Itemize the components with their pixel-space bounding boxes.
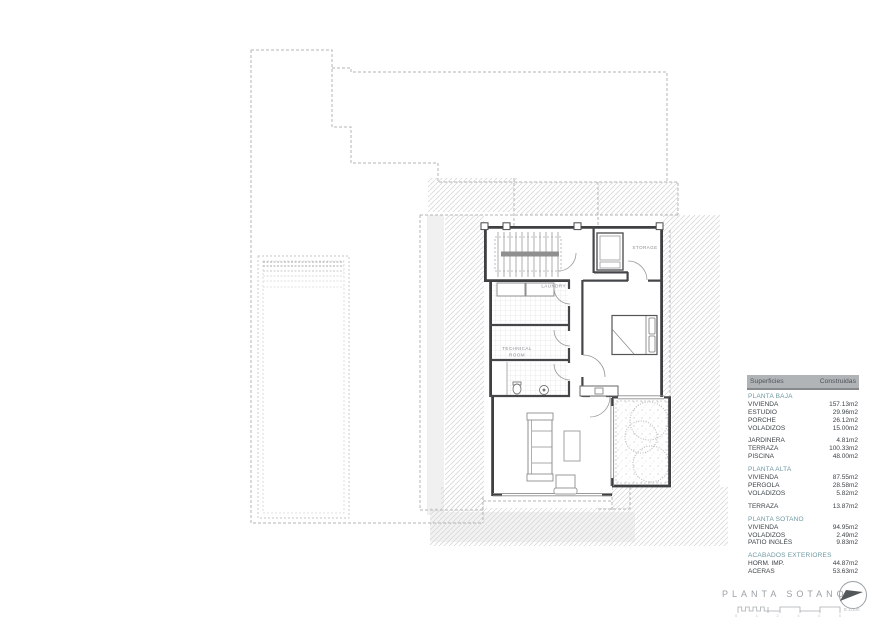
row-label: ACERAS	[748, 568, 775, 576]
table-row: PISCINA48.00m2	[747, 453, 859, 461]
section-title: PLANTA SOTANO	[747, 516, 859, 524]
section-title: PLANTA BAJA	[747, 393, 859, 401]
pool-steps	[263, 262, 344, 287]
row-value: 15.00m2	[833, 425, 858, 433]
row-label: HORM. IMP.	[748, 560, 784, 568]
technical-room-label-1: TECHNICAL	[502, 346, 532, 351]
section-title: PLANTA ALTA	[747, 466, 859, 474]
table-row: VIVIENDA157.13m2	[747, 401, 859, 409]
col-header-concept: Superficies	[750, 378, 784, 386]
scale-tick: 0	[735, 613, 737, 618]
toilet-icon	[513, 384, 521, 394]
pillow	[649, 336, 655, 352]
scale-tick: 2	[777, 613, 779, 618]
col-header-built: Construidas	[820, 378, 856, 386]
surfaces-section: ACABADOS EXTERIORESHORM. IMP.44.87m2ACER…	[747, 552, 859, 576]
row-label: PISCINA	[748, 453, 774, 461]
surfaces-section: JARDINERA4.81m2TERRAZA100.33m2PISCINA48.…	[747, 437, 859, 461]
row-label: TERRAZA	[748, 445, 778, 453]
storage-shelf	[597, 233, 623, 270]
stair-handrail	[501, 252, 559, 257]
table-row: PERGOLA28.58m2	[747, 482, 859, 490]
table-row: JARDINERA4.81m2	[747, 437, 859, 445]
row-label: VOLADIZOS	[748, 425, 785, 433]
table-row: VOLADIZOS15.00m2	[747, 425, 859, 433]
row-label: VIVIENDA	[748, 524, 778, 532]
row-label: JARDINERA	[748, 437, 785, 445]
coffee-table	[564, 431, 580, 461]
surfaces-sections: PLANTA BAJAVIVIENDA157.13m2ESTUDIO29.96m…	[747, 393, 859, 576]
row-value: 29.96m2	[833, 409, 858, 417]
table-row: ESTUDIO29.96m2	[747, 409, 859, 417]
table-row: HORM. IMP.44.87m2	[747, 560, 859, 568]
basement-plan-sheet: LAUNDRY STORAGE TECHNICAL ROOM Superfici…	[0, 0, 880, 640]
patio-ingles	[613, 398, 671, 486]
surfaces-section: TERRAZA13.87m2	[747, 503, 859, 511]
row-label: TERRAZA	[748, 503, 778, 511]
scale-tick: 1	[756, 613, 758, 618]
row-value: 94.95m2	[833, 524, 858, 532]
row-label: VIVIENDA	[748, 401, 778, 409]
row-value: 13.87m2	[833, 503, 858, 511]
table-row: VIVIENDA94.95m2	[747, 524, 859, 532]
row-value: 9.83m2	[836, 539, 858, 547]
table-row: PATIO INGLÉS9.83m2	[747, 539, 859, 547]
row-label: PORCHE	[748, 417, 776, 425]
row-value: 28.58m2	[833, 482, 858, 490]
surfaces-section: PLANTA BAJAVIVIENDA157.13m2ESTUDIO29.96m…	[747, 393, 859, 433]
surfaces-section: PLANTA ALTAVIVIENDA87.55m2PERGOLA28.58m2…	[747, 466, 859, 498]
section-title: ACABADOS EXTERIORES	[747, 552, 859, 560]
pool	[258, 256, 349, 518]
technical-room-label-2: ROOM	[509, 353, 525, 358]
plan-title: PLANTA SOTANO	[722, 589, 852, 599]
row-value: 157.13m2	[829, 401, 858, 409]
storage-label: STORAGE	[632, 245, 657, 250]
row-label: PERGOLA	[748, 482, 779, 490]
table-row: VOLADIZOS5.82m2	[747, 490, 859, 498]
table-row: VIVIENDA87.55m2	[747, 474, 859, 482]
row-label: ESTUDIO	[748, 409, 777, 417]
scale-tick: 3	[797, 613, 799, 618]
surfaces-section: PLANTA SOTANOVIVIENDA94.95m2VOLADIZOS2.4…	[747, 516, 859, 548]
row-value: 87.55m2	[833, 474, 858, 482]
row-value: 100.33m2	[829, 445, 858, 453]
row-value: 44.87m2	[833, 560, 858, 568]
scale-label: E 1/100	[844, 607, 860, 612]
row-value: 5.82m2	[836, 490, 858, 498]
scale-tick: 5	[839, 613, 841, 618]
table-row: TERRAZA100.33m2	[747, 445, 859, 453]
surfaces-table-header: Superficies Construidas	[747, 375, 859, 390]
pillow	[649, 318, 655, 334]
row-label: VIVIENDA	[748, 474, 778, 482]
row-label: PATIO INGLÉS	[748, 539, 792, 547]
row-value: 2.49m2	[836, 532, 858, 540]
table-row: PORCHE26.12m2	[747, 417, 859, 425]
row-value: 53.63m2	[833, 568, 858, 576]
scale-tick: 4	[818, 613, 820, 618]
scale-ticks: 012345	[735, 613, 841, 618]
row-label: VOLADIZOS	[748, 490, 785, 498]
row-value: 48.00m2	[833, 453, 858, 461]
table-row: ACERAS53.63m2	[747, 568, 859, 576]
row-value: 26.12m2	[833, 417, 858, 425]
surfaces-table: Superficies Construidas PLANTA BAJAVIVIE…	[747, 375, 859, 576]
laundry-label: LAUNDRY	[541, 284, 566, 289]
row-value: 4.81m2	[836, 437, 858, 445]
table-row: TERRAZA13.87m2	[747, 503, 859, 511]
